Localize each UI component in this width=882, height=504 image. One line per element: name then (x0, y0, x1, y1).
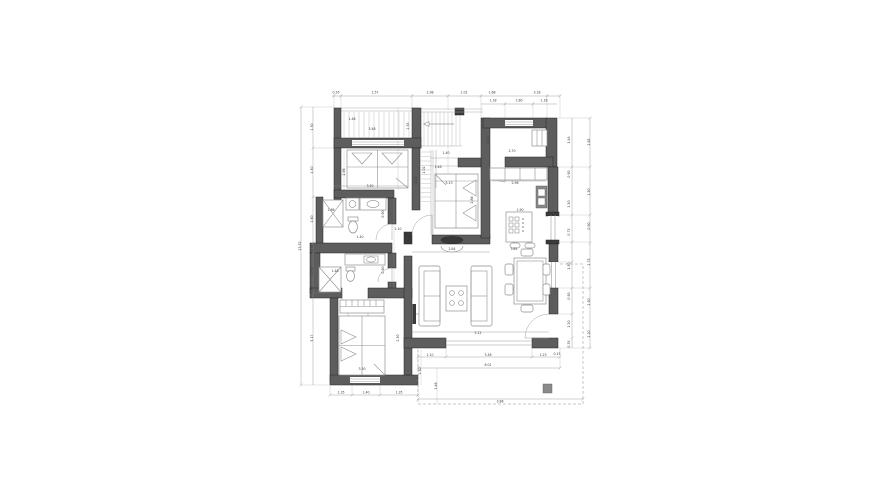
dimension-label: 1.02 (460, 91, 467, 95)
kitchen-counter (490, 168, 547, 180)
dimension-label: 3.30 (358, 367, 365, 371)
dimension-label: 1.48 (348, 117, 355, 121)
dimension-label: 1.40 (442, 151, 449, 155)
dimension-label: 1.57 (371, 91, 378, 95)
dimension-label: 1.35 (337, 391, 344, 395)
tv-icon (413, 304, 420, 324)
dimension-label: 1.40 (356, 235, 363, 239)
dimension-label: 5.13 (445, 181, 452, 185)
kitchen-island-icon (506, 212, 532, 242)
dining-table-icon (514, 258, 546, 304)
dimension-label: 5.17 (310, 334, 314, 341)
dimension-label: 2.50 (396, 334, 400, 341)
dimension-label: 1.50 (567, 262, 571, 269)
dimension-label: 1.50 (310, 166, 314, 173)
dimension-label: 0.80 (310, 286, 314, 293)
dimension-label: 1.18 (489, 99, 496, 103)
dimension-label: 1.18 (540, 99, 547, 103)
dimension-label: 1.65 (587, 138, 591, 145)
dimension-label: 2.05 (414, 176, 418, 183)
dimension-label: 3.46 (484, 353, 491, 357)
column-icon (543, 384, 552, 393)
dimension-label: 1.10 (394, 227, 401, 231)
dimension-label: 1.50 (567, 200, 571, 207)
dimension-label: 3.18 (533, 91, 540, 95)
double-bed-icon-bedroom1 (347, 150, 408, 188)
floor-plan-canvas: 0.351.572.981.021.683.181.181.801.181.48… (0, 0, 882, 504)
dimension-label: 13.52 (298, 241, 302, 250)
dimension-label: 1.80 (515, 99, 522, 103)
porch-outline (418, 264, 583, 404)
washing-machine-icon (346, 198, 359, 210)
dimension-label: 1.68 (488, 91, 495, 95)
dimension-label: 0.75 (567, 228, 571, 235)
dimension-label: 3.48 (368, 127, 375, 131)
dimension-label: 2.64 (448, 247, 455, 251)
dimension-label: 0.90 (587, 222, 591, 229)
dimension-label: 1.75 (587, 258, 591, 265)
dimension-label: 1.50 (587, 298, 591, 305)
dimension-label: 0.15 (553, 352, 560, 356)
dimension-label: 0.75 (310, 244, 314, 251)
dimension-label: 1.46 (434, 165, 441, 169)
dimension-label: 0.35 (332, 91, 339, 95)
dimension-label: 1.10 (426, 353, 433, 357)
dimension-label: 1.02 (422, 166, 426, 173)
dimension-label: 1.10 (486, 136, 490, 143)
kitchen-sink-icon (536, 186, 547, 208)
dimension-label: 2.98 (426, 91, 433, 95)
dimension-label: 0.90 (567, 292, 571, 299)
dimension-label: 1.35 (395, 391, 402, 395)
dimension-label: 0.90 (381, 210, 385, 217)
closet-icon (532, 130, 547, 146)
sofa-icon-left (419, 266, 440, 326)
shower-icon-upper (323, 200, 343, 227)
dimension-label: 1.30 (310, 123, 314, 130)
dimension-label: 2.96 (511, 181, 518, 185)
dimension-label: 0.80 (381, 266, 385, 273)
dimension-label: 1.86 (327, 208, 334, 212)
dimension-label: 1.50 (418, 367, 422, 374)
stair-arrow-icon (424, 122, 455, 127)
dimension-label: 2.86 (470, 196, 474, 203)
dimension-label: 3.50 (366, 184, 373, 188)
dimension-label: 3.81 (510, 247, 517, 251)
wardrobe-icon (340, 300, 384, 313)
dimension-label: 1.70 (310, 267, 314, 274)
dimension-label: 1.46 (434, 382, 438, 389)
dimension-label: 1.48 (331, 269, 338, 273)
dimension-label: 3.86 (496, 400, 503, 404)
dimension-label: 2.96 (342, 168, 346, 175)
floor-plan-drawing: 0.351.572.981.021.683.181.181.801.181.48… (0, 0, 882, 504)
toilet-icon-upper (348, 217, 358, 233)
sofa-icon-right (471, 266, 492, 326)
dimension-label: 1.90 (516, 208, 523, 212)
dimension-label: 0.90 (567, 170, 571, 177)
dimension-label: 0.35 (567, 340, 571, 347)
dimension-label: 1.50 (587, 188, 591, 195)
dimension-label: 1.20 (567, 320, 571, 327)
dimension-label: 1.60 (310, 215, 314, 222)
dimension-label: 1.20 (587, 330, 591, 337)
dimension-label: 1.48 (567, 136, 571, 143)
dimension-label: 2.55 (406, 122, 410, 129)
dimension-label: 5.12 (474, 331, 481, 335)
dimension-label: 1.23 (539, 353, 546, 357)
dimension-label: 6.01 (484, 363, 491, 367)
dimension-label: 2.70 (508, 149, 515, 153)
sink-icon-lower (345, 254, 385, 265)
dimension-label: 1.40 (362, 391, 369, 395)
coffee-table-icon (446, 286, 467, 311)
toilet-icon-lower (346, 267, 355, 281)
sink-icon-upper (360, 198, 386, 210)
